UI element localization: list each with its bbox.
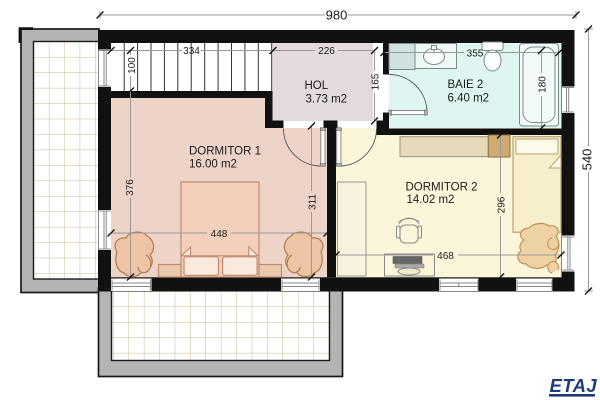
svg-text:980: 980 [326, 8, 348, 23]
svg-text:ETAJ: ETAJ [550, 375, 598, 396]
svg-text:448: 448 [211, 229, 228, 240]
svg-text:311: 311 [307, 194, 318, 210]
svg-text:BAIE 2: BAIE 2 [448, 79, 484, 91]
svg-text:355: 355 [467, 49, 484, 60]
svg-text:6.40 m2: 6.40 m2 [448, 93, 490, 105]
svg-text:334: 334 [183, 46, 200, 57]
svg-text:100: 100 [127, 57, 138, 74]
svg-text:226: 226 [318, 46, 335, 57]
svg-text:3.73 m2: 3.73 m2 [306, 94, 348, 106]
svg-text:296: 296 [496, 196, 507, 213]
svg-text:14.02 m2: 14.02 m2 [407, 194, 455, 206]
svg-text:540: 540 [580, 149, 595, 171]
svg-text:165: 165 [370, 73, 381, 90]
svg-text:16.00 m2: 16.00 m2 [189, 159, 237, 171]
svg-text:HOL: HOL [305, 80, 329, 92]
svg-text:376: 376 [125, 179, 136, 196]
svg-text:DORMITOR 1: DORMITOR 1 [189, 146, 261, 158]
svg-text:468: 468 [437, 251, 454, 262]
svg-text:180: 180 [537, 76, 548, 93]
svg-text:DORMITOR 2: DORMITOR 2 [406, 182, 478, 194]
